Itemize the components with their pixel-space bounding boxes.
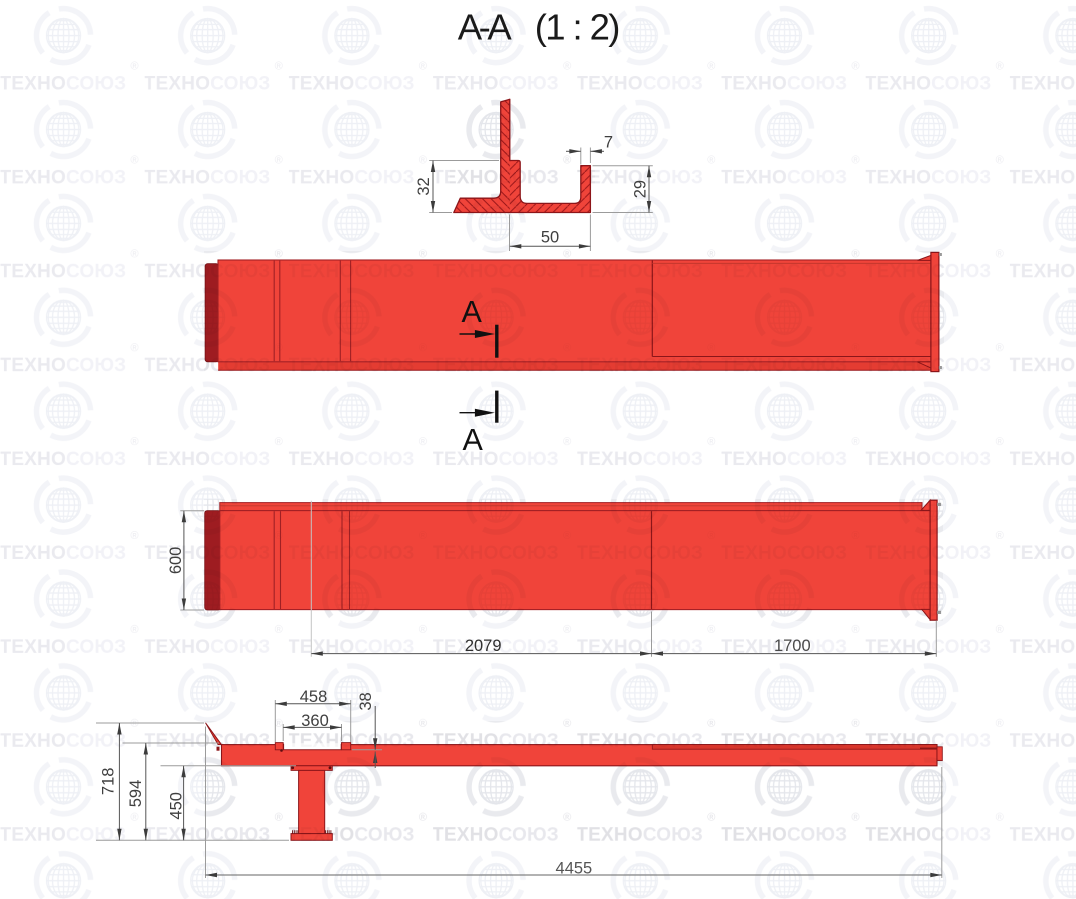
svg-text:7: 7 (604, 134, 613, 152)
svg-text:32: 32 (415, 177, 433, 195)
svg-text:4455: 4455 (556, 859, 593, 877)
svg-text:29: 29 (631, 180, 649, 198)
svg-text:(1 : 2): (1 : 2) (535, 7, 619, 48)
svg-text:600: 600 (167, 547, 185, 575)
svg-text:594: 594 (127, 780, 145, 808)
svg-text:360: 360 (301, 712, 329, 730)
svg-text:450: 450 (168, 792, 186, 820)
svg-text:A-A: A-A (458, 7, 513, 48)
svg-text:A: A (463, 423, 484, 457)
svg-text:718: 718 (99, 768, 117, 796)
svg-text:2079: 2079 (465, 637, 502, 655)
svg-text:458: 458 (300, 688, 328, 706)
svg-text:38: 38 (357, 692, 375, 710)
svg-text:50: 50 (541, 228, 559, 246)
svg-text:1700: 1700 (774, 637, 811, 655)
